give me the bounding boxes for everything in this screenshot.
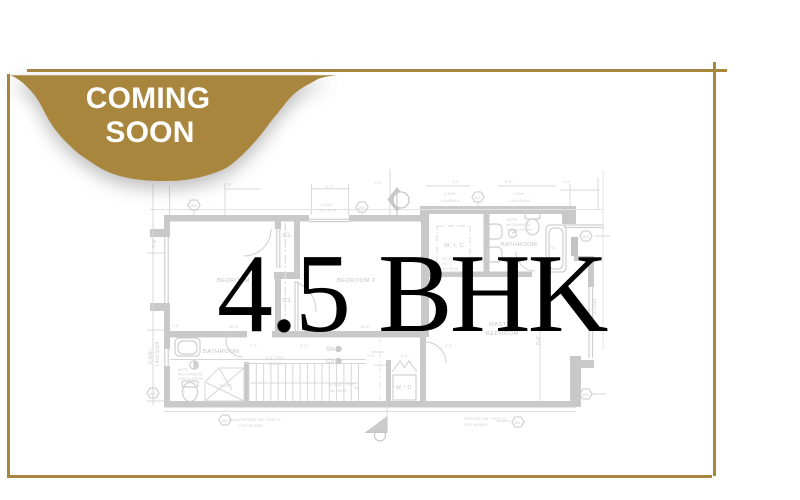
svg-text:6'-6": 6'-6" — [505, 179, 513, 184]
svg-text:VENTILATION: VENTILATION — [178, 376, 203, 381]
svg-text:4'-0": 4'-0" — [452, 179, 460, 184]
svg-text:PROVIDE 5/8" TYPE 'X': PROVIDE 5/8" TYPE 'X' — [239, 417, 281, 422]
svg-text:BN: BN — [354, 385, 360, 390]
svg-text:GYP. BOARD: GYP. BOARD — [464, 422, 488, 427]
svg-text:L4x3.5x1/4: L4x3.5x1/4 — [510, 198, 530, 203]
svg-text:W3: W3 — [150, 391, 157, 396]
svg-text:16-R @ 7 7/32": 16-R @ 7 7/32" — [328, 382, 355, 387]
svg-text:W3: W3 — [475, 195, 482, 200]
svg-text:13-T@10": 13-T@10" — [330, 388, 348, 393]
svg-text:2-2x8+: 2-2x8+ — [513, 191, 526, 196]
svg-text:W3: W3 — [222, 418, 229, 423]
svg-text:L4x3.5x1/4: L4x3.5x1/4 — [441, 198, 461, 203]
svg-text:W3: W3 — [583, 392, 590, 397]
svg-text:2'-6": 2'-6" — [563, 179, 571, 184]
svg-text:2-2x8+: 2-2x8+ — [444, 191, 457, 196]
svg-text:L4x3.5x1/4: L4x3.5x1/4 — [155, 341, 161, 366]
svg-text:W / D: W / D — [396, 385, 412, 391]
svg-text:C0: C0 — [326, 358, 335, 365]
svg-text:GUARD: GUARD — [268, 361, 282, 366]
svg-text:2'-6": 2'-6" — [172, 323, 180, 328]
svg-text:PROVIDE 5/8" TYPE 'X': PROVIDE 5/8" TYPE 'X' — [464, 416, 506, 421]
svg-text:W3: W3 — [515, 420, 522, 425]
svg-text:SLOPE: SLOPE — [219, 383, 232, 388]
svg-text:GYP. BOARD: GYP. BOARD — [239, 423, 263, 428]
svg-text:2-2x6+: 2-2x6+ — [148, 348, 154, 364]
